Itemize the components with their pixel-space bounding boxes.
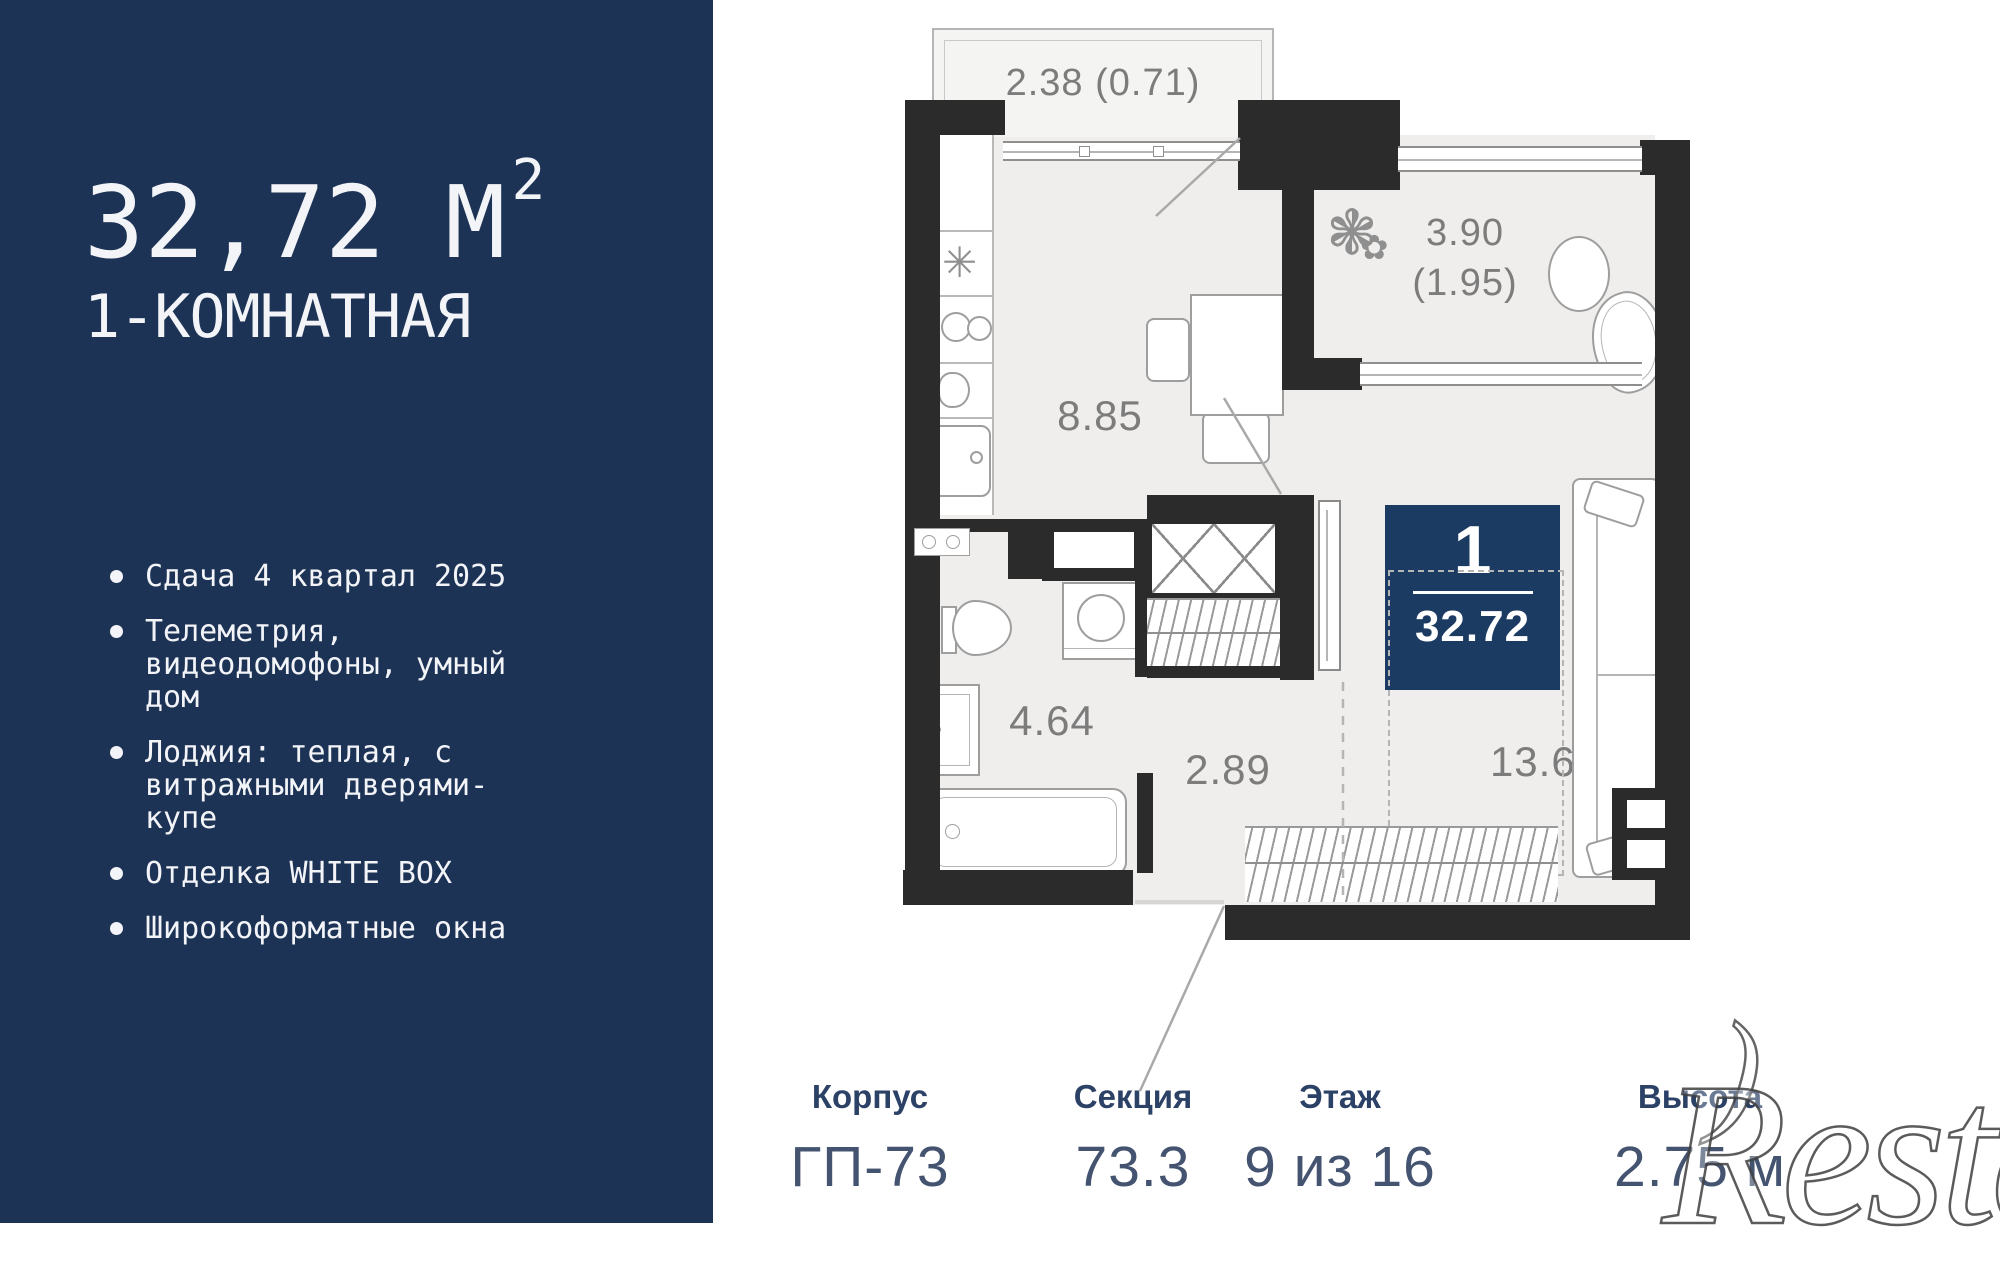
vent-opening [1627,800,1665,828]
kitchen-table [1190,294,1284,416]
bullet-icon [110,625,123,638]
window-rail [1398,159,1642,161]
window-rail [1003,151,1240,153]
window-rail [1360,374,1642,376]
info-item-etazh: Этаж 9 из 16 [1170,1078,1510,1200]
feature-item: Широкоформатные окна [110,912,530,945]
hanger-rail [1147,632,1280,634]
bathroom-area-label: 4.64 [1009,697,1095,745]
watermark: Restate [1662,1052,2000,1257]
wall [903,870,1133,905]
bullet-icon [110,922,123,935]
kitchen-window [1003,141,1240,161]
entrance-door-swing [1140,906,1224,1091]
info-value: 9 из 16 [1170,1134,1510,1200]
mirror [1318,500,1341,671]
counter-divider [940,230,992,232]
snowflake-icon: ✳ [942,238,977,287]
bullet-icon [110,867,123,880]
wall [1147,495,1280,519]
bullet-icon [110,746,123,759]
bathtub [923,788,1127,876]
bullet-icon [110,570,123,583]
hallway-area-label: 2.89 [1185,746,1271,794]
towel-radiator-detail [946,535,960,549]
wall [905,100,940,905]
wall [1225,905,1690,940]
radiator-window [1245,826,1558,902]
faucet [970,451,983,464]
wall [1008,519,1042,579]
wall [1282,358,1362,390]
wall [1238,100,1400,190]
chair [1146,318,1190,382]
wardrobe [1147,519,1280,598]
loggia-door-window [1360,362,1642,386]
bathtub-inner-line [933,797,1117,867]
feature-item: Телеметрия, видеодомофоны, умный дом [110,615,530,714]
feature-item: Сдача 4 квартал 2025 [110,560,530,593]
wall [1280,495,1314,680]
wall [1640,140,1690,175]
curtain-stop [1153,146,1164,157]
washing-machine [1062,582,1138,660]
page: { "sidebar": { "area_value": "32,72 М", … [0,0,2000,1223]
mirror-line [1326,510,1328,661]
radiator-line [1245,862,1558,864]
wall [1137,773,1153,873]
feature-item: Отделка WHITE BOX [110,857,530,890]
area-value: 32,72 М [84,164,505,281]
wardrobe-cell [1214,524,1276,593]
wall [1147,666,1280,678]
hanger-rail-closet [1147,598,1280,670]
info-label: Этаж [1170,1078,1510,1116]
feature-list: Сдача 4 квартал 2025 Телеметрия, видеодо… [110,560,530,967]
wall-shelf-niche [1042,519,1147,581]
kettle [938,372,970,408]
feature-item: Лоджия: теплая, с витражными дверями-куп… [110,736,530,835]
balcony-area-label: 2.38 (0.71) [1006,62,1201,105]
plant-icon: ✿ [1360,228,1389,268]
sofa-back-line [1596,484,1598,872]
shelf-niche [1054,532,1134,568]
counter-divider [940,295,992,297]
bathtub-drain [945,824,960,839]
room-type-label: 1-КОМНАТНАЯ [84,282,470,352]
loggia-area-label: 3.90 [1426,212,1504,255]
chair [1202,412,1270,464]
loggia-area-secondary-label: (1.95) [1412,262,1517,305]
counter-divider [940,417,992,419]
towel-radiator-detail [922,535,936,549]
vent-opening [1627,840,1665,868]
loggia-window [1398,146,1642,172]
towel-radiator [914,528,970,556]
page-title: 32,72 М2 [84,148,545,281]
sidebar: 32,72 М2 1-КОМНАТНАЯ Сдача 4 квартал 202… [0,0,713,1223]
washer-drum [1077,594,1125,642]
area-superscript: 2 [511,148,545,213]
kitchen-area-label: 8.85 [1057,392,1143,440]
wardrobe-cell [1152,524,1216,593]
sofa-seat-line [1596,674,1656,676]
vent-shaft [1612,788,1690,880]
round-table [1548,236,1610,312]
counter-divider [940,362,992,364]
curtain-stop [1079,146,1090,157]
stove-burner [967,316,992,341]
washer-panel-line [1064,648,1136,650]
